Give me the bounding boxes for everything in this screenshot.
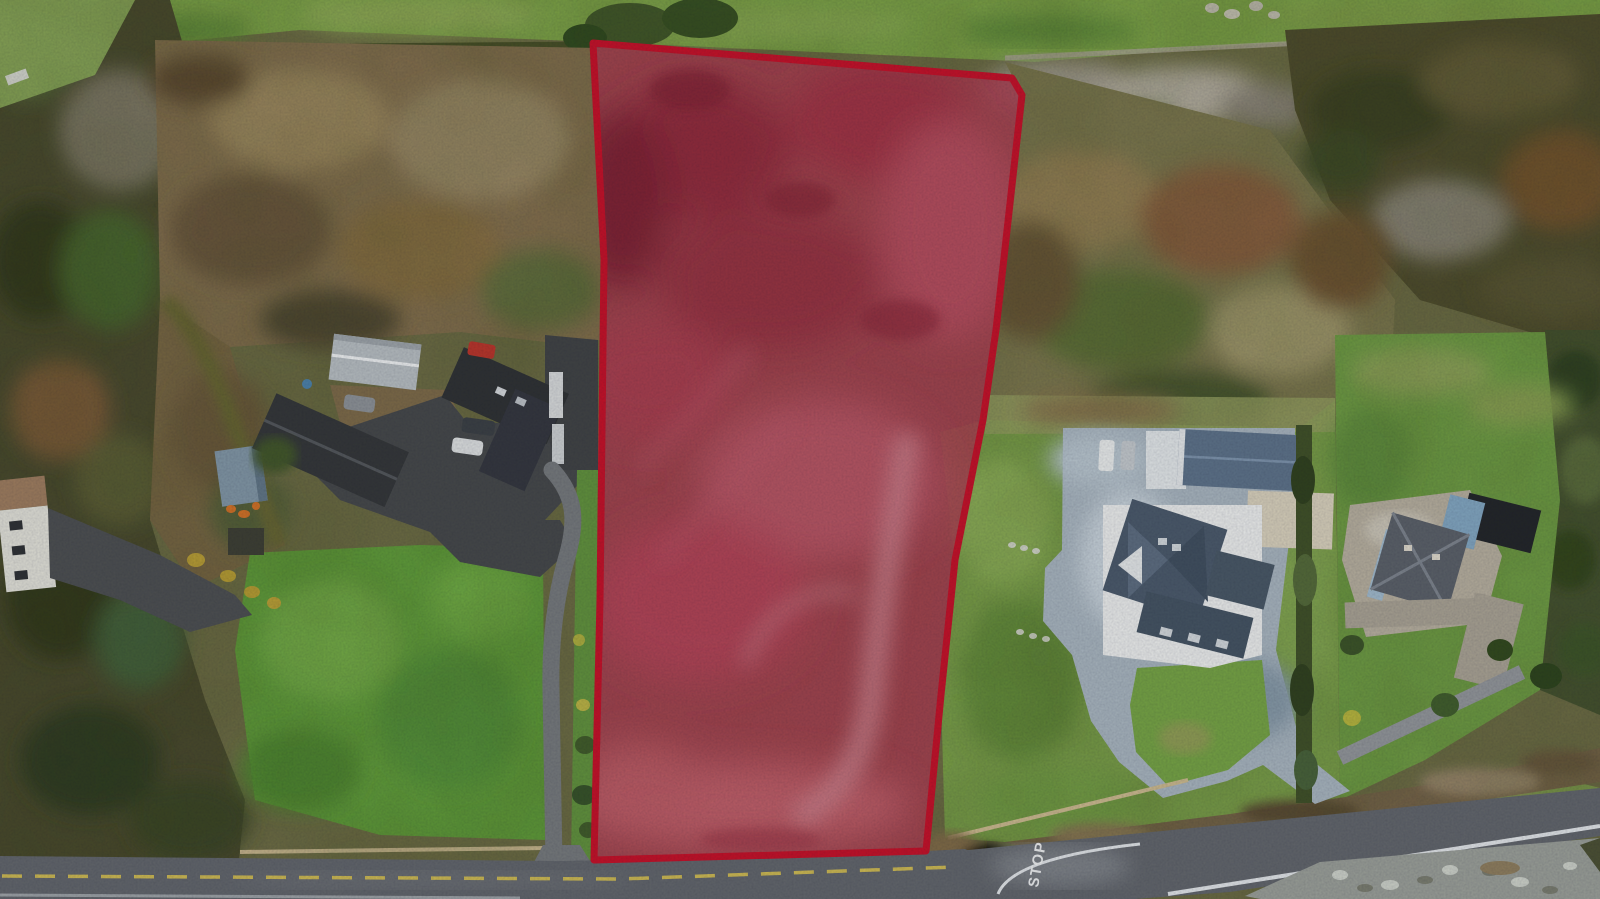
aerial-photo: STOP — [0, 0, 1600, 899]
aerial-photo-canvas: STOP — [0, 0, 1600, 899]
photo-grain — [0, 0, 1600, 899]
